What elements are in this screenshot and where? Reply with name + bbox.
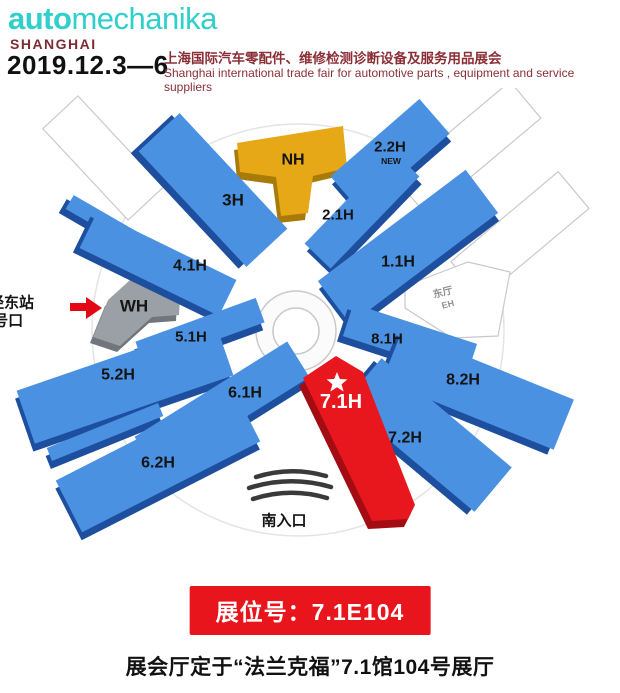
booth-number-badge: 展位号：7.1E104 xyxy=(190,586,431,635)
venue-map: 徐泾东站 6号口 3H NH 2.2H NEW 2.1H 1.1H 4.1H W… xyxy=(0,88,620,560)
station-label-line1: 徐泾东站 xyxy=(0,294,34,312)
hall-7-1h-label: 7.1H xyxy=(320,391,362,413)
hall-6-1h-label: 6.1H xyxy=(228,385,262,402)
hall-6-2h-label: 6.2H xyxy=(141,455,175,472)
hall-wh-label: WH xyxy=(120,297,148,316)
hall-5-1h-label: 5.1H xyxy=(175,329,207,346)
south-entrance-label: 南入口 xyxy=(261,512,306,530)
hall-2-2h-new-tag: NEW xyxy=(381,156,402,166)
station-label-line2: 6号口 xyxy=(0,313,23,330)
hall-2-1h-label: 2.1H xyxy=(322,207,354,224)
footer-note: 展会厅定于“法兰克福”7.1馆104号展厅 xyxy=(0,651,620,681)
flyer-page: automechanika SHANGHAI 2019.12.3—6 上海国际汽… xyxy=(0,0,620,693)
hall-4-1h-label: 4.1H xyxy=(173,258,207,275)
event-dates: 2019.12.3—6 xyxy=(7,50,169,81)
hall-8-1h-label: 8.1H xyxy=(371,331,403,348)
hall-1-1h-label: 1.1H xyxy=(381,254,415,271)
hall-7-2h-label: 7.2H xyxy=(388,430,422,447)
hall-3h-label: 3H xyxy=(222,191,244,210)
hall-2-2h-label: 2.2H xyxy=(374,139,406,156)
hall-nh-label: NH xyxy=(281,152,304,169)
brand-logo-auto: auto xyxy=(8,1,71,36)
brand-logo-mechanika: mechanika xyxy=(71,1,216,36)
hall-8-2h-label: 8.2H xyxy=(446,372,480,389)
brand-logo: automechanika xyxy=(8,2,217,36)
hall-5-2h-label: 5.2H xyxy=(101,367,135,384)
event-subtitle-cn: 上海国际汽车零配件、维修检测诊断设备及服务用品展会 xyxy=(164,51,620,66)
